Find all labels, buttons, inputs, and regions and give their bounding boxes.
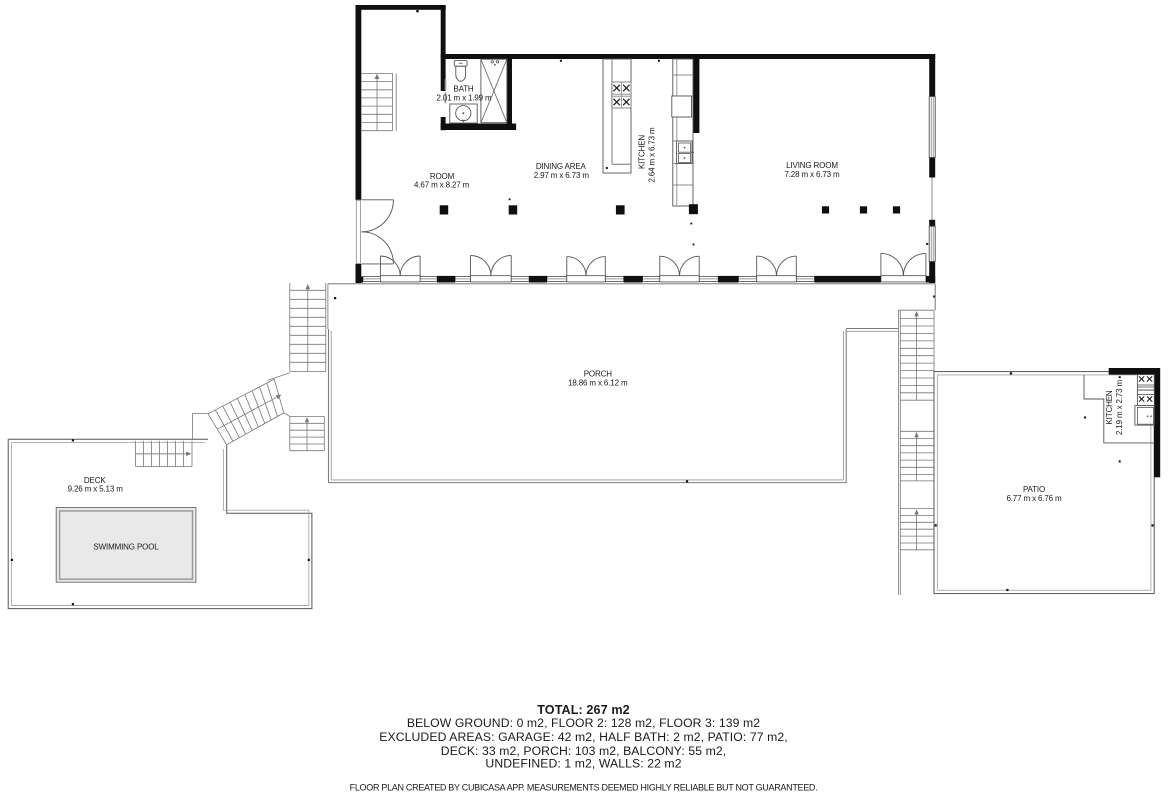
svg-text:2.01 m x 1.99 m: 2.01 m x 1.99 m (436, 93, 492, 102)
svg-text:PORCH: PORCH (584, 369, 613, 378)
svg-text:KITCHEN: KITCHEN (638, 135, 647, 169)
svg-text:DECK: DECK (84, 476, 106, 485)
svg-text:PATIO: PATIO (1023, 485, 1045, 494)
svg-text:2.19 m x 2.73 m: 2.19 m x 2.73 m (1115, 379, 1124, 435)
svg-text:2.97 m x 6.73 m: 2.97 m x 6.73 m (534, 171, 590, 180)
svg-text:9.26 m x 5.13 m: 9.26 m x 5.13 m (68, 485, 124, 494)
svg-text:TOTAL: 267 m2: TOTAL: 267 m2 (537, 703, 630, 717)
svg-text:7.28 m x 6.73 m: 7.28 m x 6.73 m (784, 170, 840, 179)
svg-text:LIVING ROOM: LIVING ROOM (786, 161, 838, 170)
svg-text:BELOW GROUND: 0 m2, FLOOR 2: 1: BELOW GROUND: 0 m2, FLOOR 2: 128 m2, FLO… (407, 716, 760, 730)
svg-text:DINING AREA: DINING AREA (536, 162, 587, 171)
svg-text:FLOOR PLAN CREATED BY CUBICASA: FLOOR PLAN CREATED BY CUBICASA APP. MEAS… (350, 783, 818, 793)
svg-text:ROOM: ROOM (430, 172, 455, 181)
svg-text:2.64 m x 6.73 m: 2.64 m x 6.73 m (648, 127, 657, 183)
svg-text:BATH: BATH (453, 85, 474, 94)
svg-text:SWIMMING POOL: SWIMMING POOL (93, 543, 159, 552)
svg-text:UNDEFINED: 1 m2, WALLS: 22 m2: UNDEFINED: 1 m2, WALLS: 22 m2 (485, 756, 681, 770)
svg-text:KITCHEN: KITCHEN (1105, 390, 1114, 424)
svg-text:EXCLUDED AREAS: GARAGE: 42 m2,: EXCLUDED AREAS: GARAGE: 42 m2, HALF BATH… (379, 730, 787, 744)
svg-text:4.67 m x 8.27 m: 4.67 m x 8.27 m (414, 181, 470, 190)
svg-text:18.86 m x 6.12 m: 18.86 m x 6.12 m (568, 379, 628, 388)
svg-text:6.77 m x 6.76 m: 6.77 m x 6.76 m (1006, 494, 1062, 503)
